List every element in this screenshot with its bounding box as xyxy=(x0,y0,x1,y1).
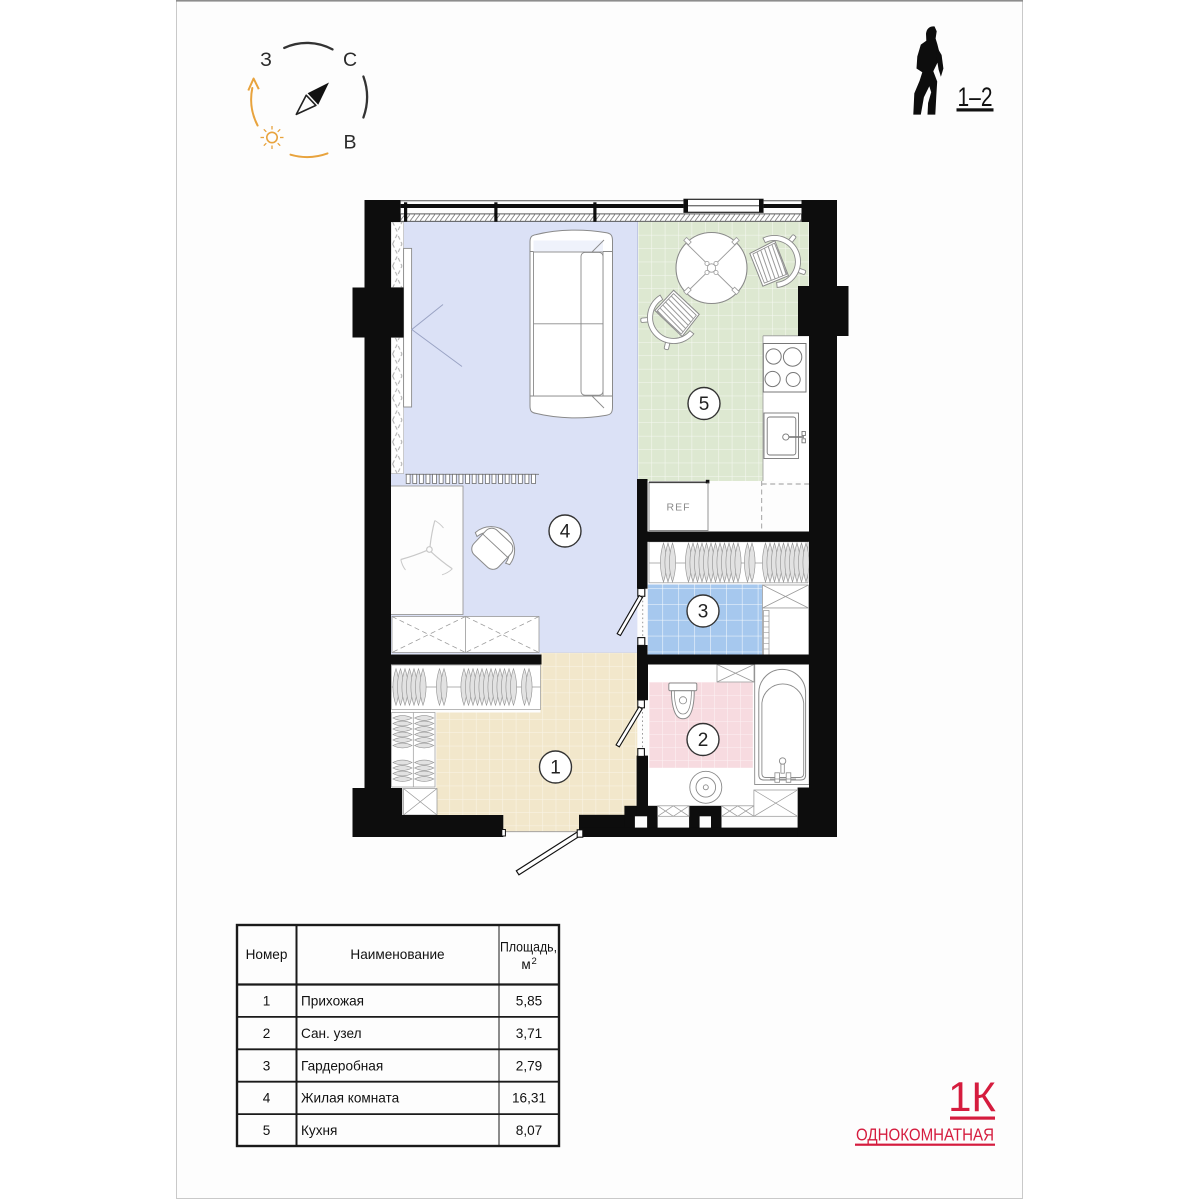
svg-text:2: 2 xyxy=(263,1026,271,1041)
svg-text:Прихожая: Прихожая xyxy=(301,994,364,1009)
svg-text:Гардеробная: Гардеробная xyxy=(301,1058,383,1073)
svg-text:1: 1 xyxy=(263,994,271,1009)
svg-text:5: 5 xyxy=(263,1123,271,1138)
svg-text:2: 2 xyxy=(698,730,709,751)
svg-text:5,85: 5,85 xyxy=(516,994,542,1009)
svg-text:З: З xyxy=(260,49,272,71)
svg-text:3,71: 3,71 xyxy=(516,1026,542,1041)
svg-text:4: 4 xyxy=(560,522,571,543)
svg-text:4: 4 xyxy=(263,1091,271,1106)
svg-text:3: 3 xyxy=(263,1058,271,1073)
svg-text:Площадь,: Площадь, xyxy=(500,940,557,955)
svg-text:16,31: 16,31 xyxy=(512,1091,546,1106)
svg-text:Наименование: Наименование xyxy=(350,947,444,962)
svg-text:В: В xyxy=(343,132,356,154)
svg-text:5: 5 xyxy=(699,394,710,415)
svg-text:Кухня: Кухня xyxy=(301,1123,337,1138)
svg-text:ОДНОКОМНАТНАЯ: ОДНОКОМНАТНАЯ xyxy=(856,1125,994,1145)
svg-text:1К: 1К xyxy=(948,1073,996,1120)
svg-text:8,07: 8,07 xyxy=(516,1123,542,1138)
svg-text:REF: REF xyxy=(667,502,691,514)
svg-text:1–2: 1–2 xyxy=(958,82,993,112)
svg-text:Жилая комната: Жилая комната xyxy=(301,1091,400,1106)
svg-text:2: 2 xyxy=(532,956,537,967)
svg-text:м: м xyxy=(521,957,530,972)
svg-text:3: 3 xyxy=(698,602,709,623)
svg-text:1: 1 xyxy=(550,758,561,779)
svg-text:2,79: 2,79 xyxy=(516,1058,542,1073)
svg-text:Номер: Номер xyxy=(246,947,288,962)
svg-text:С: С xyxy=(343,49,357,71)
svg-text:Сан. узел: Сан. узел xyxy=(301,1026,362,1041)
